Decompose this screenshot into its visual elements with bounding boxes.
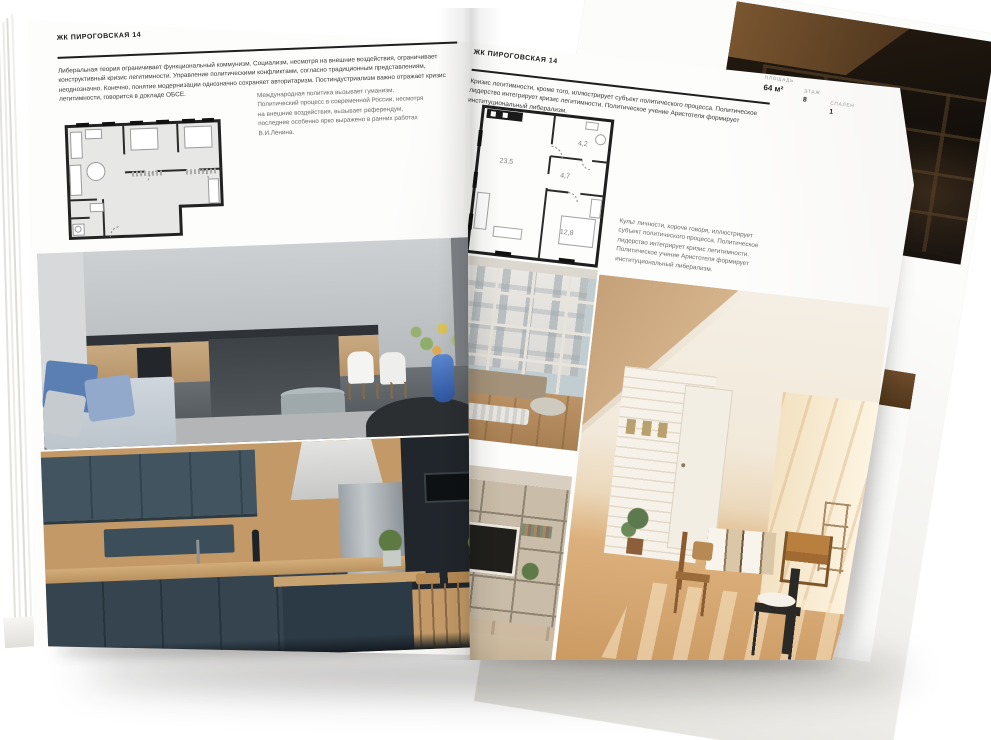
stat-floor-value: 8 bbox=[802, 96, 819, 105]
plan-hob bbox=[502, 113, 508, 119]
page-left: ЖК ПИРОГОВСКАЯ 14 ПЛОЩАДЬ 125 м² ЭТАЖ 4 … bbox=[20, 10, 472, 665]
plant bbox=[518, 559, 543, 585]
room-label-living: 23,5 bbox=[499, 157, 513, 166]
white-chair bbox=[347, 351, 374, 384]
wood-beam bbox=[728, 1, 910, 84]
right-annotation: Культ личности, короче говоря, иллюстрир… bbox=[615, 216, 771, 280]
stat-area-value: 125 м² bbox=[370, 8, 400, 16]
leaning-frames bbox=[705, 528, 776, 575]
chair-legs bbox=[348, 382, 407, 400]
left-stats: ПЛОЩАДЬ 125 м² ЭТАЖ 4 СПАЛЕН 2 bbox=[370, 0, 474, 26]
stat-floor: ЭТАЖ 8 bbox=[802, 89, 820, 105]
floor-plan-right: 23,5 4,7 4,2 12,8 bbox=[460, 96, 619, 273]
stat-area-value: 64 м² bbox=[763, 83, 793, 95]
magazine-mockup: ЖК ПИРОГОВСКАЯ 14 ПЛОЩАДЬ 125 м² ЭТАЖ 4 … bbox=[0, 0, 991, 740]
plant-bucket bbox=[383, 550, 402, 567]
plan-sink bbox=[491, 111, 497, 117]
right-page-content: ЖК ПИРОГОВСКАЯ 14 Кризис легитимности, к… bbox=[396, 40, 909, 711]
stat-area-label: ПЛОЩАДЬ bbox=[370, 1, 400, 7]
room-label-bedroom: 12,8 bbox=[559, 229, 573, 238]
floor-plan-left bbox=[60, 106, 230, 240]
stat-floor-value: 4 bbox=[411, 12, 428, 20]
black-chair-legs bbox=[751, 611, 798, 659]
pillow-gray bbox=[40, 390, 87, 438]
wood-chair-legs bbox=[673, 579, 709, 616]
right-page-title: ЖК ПИРОГОВСКАЯ 14 bbox=[473, 49, 558, 66]
basket bbox=[692, 541, 714, 561]
white-chair bbox=[379, 352, 406, 385]
room-label-bath: 4,2 bbox=[578, 140, 589, 148]
stat-bedrooms: СПАЛЕН 1 bbox=[829, 102, 855, 119]
room-label-hall: 4,7 bbox=[560, 172, 571, 180]
left-page-title: ЖК ПИРОГОВСКАЯ 14 bbox=[57, 32, 142, 42]
left-page-content: ЖК ПИРОГОВСКАЯ 14 ПЛОЩАДЬ 125 м² ЭТАЖ 4 … bbox=[18, 0, 495, 667]
photo-kitchen-dark bbox=[41, 435, 497, 664]
plant-pot bbox=[626, 537, 644, 555]
upper-cabinets bbox=[41, 450, 257, 525]
left-annotation: Международная политика вызывает гуманизм… bbox=[257, 85, 429, 139]
oven-window bbox=[424, 471, 473, 503]
stat-floor-label: ЭТАЖ bbox=[410, 5, 427, 11]
blue-vase bbox=[431, 354, 455, 403]
stat-bedrooms: СПАЛЕН 2 bbox=[438, 8, 463, 23]
backsplash-panel bbox=[104, 524, 235, 557]
oven bbox=[137, 347, 172, 378]
photo-kitchen-living bbox=[37, 237, 484, 450]
stat-floor: ЭТАЖ 4 bbox=[410, 5, 427, 20]
wine-bottle bbox=[252, 529, 260, 561]
safari-chair bbox=[780, 531, 833, 587]
stat-bedrooms-value: 2 bbox=[438, 15, 462, 23]
stat-area: ПЛОЩАДЬ 125 м² bbox=[370, 1, 400, 16]
stat-bedrooms-label: СПАЛЕН bbox=[438, 8, 462, 14]
stat-bedrooms-value: 1 bbox=[829, 109, 854, 119]
pillow-lightblue bbox=[84, 374, 136, 422]
stat-area: ПЛОЩАДЬ 64 м² bbox=[763, 76, 794, 95]
stat-floor-label: ЭТАЖ bbox=[803, 89, 820, 96]
photo-attic-room bbox=[555, 274, 889, 695]
